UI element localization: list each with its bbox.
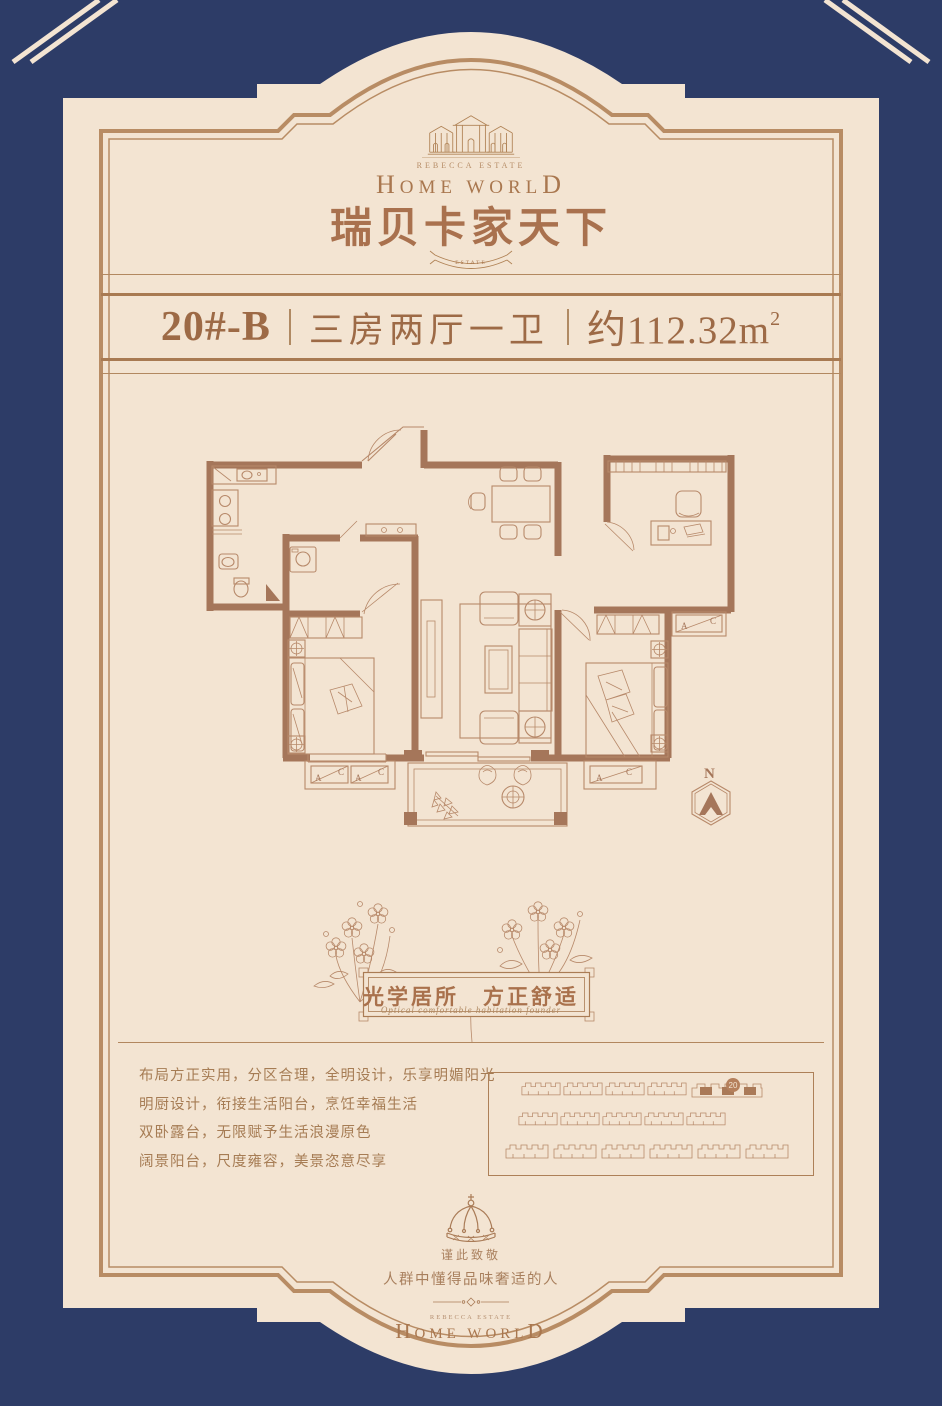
unit-banner: 20#-B 三房两厅一卫 约112.32m2	[101, 293, 841, 361]
footer-brand-name: HOME WORLD	[395, 1321, 546, 1344]
feature-line: 双卧露台，无限赋予生活浪漫原色	[139, 1119, 496, 1148]
kitchen	[212, 466, 276, 534]
poster: REBECCA ESTATE HOME WORLD 瑞贝卡家天下 ESTATE …	[0, 0, 942, 1406]
floorplan-walls	[207, 430, 734, 758]
building-footprint	[519, 1113, 557, 1125]
compass-icon: N	[692, 766, 730, 825]
hall-cabinet	[366, 524, 416, 536]
entry-porch	[362, 427, 424, 461]
tribute-line: 谨此致敬	[441, 1246, 501, 1263]
floral-ornament	[300, 890, 645, 1045]
unit-area: 约112.32m2	[587, 299, 781, 355]
balcony-pillar	[404, 750, 422, 759]
svg-text:C: C	[378, 767, 384, 777]
footer-estate-label: REBECCA ESTATE	[430, 1314, 512, 1321]
building-footprint	[564, 1083, 602, 1095]
site-plan-map: 20	[488, 1072, 814, 1176]
washing-machine	[290, 547, 316, 572]
feature-line: 阔景阳台，尺度雍容，美景恣意尽享	[139, 1148, 496, 1177]
building-footprint	[698, 1145, 740, 1158]
unit-layout: 三房两厅一卫	[309, 302, 549, 353]
unit-number: 20#-B	[161, 303, 271, 351]
brand-name: HOME WORLD	[376, 172, 566, 202]
ribbon-ornament: ESTATE	[426, 250, 516, 274]
brand-chinese-name: 瑞贝卡家天下	[330, 208, 612, 250]
dining-set	[469, 467, 551, 539]
balcony-pillar	[531, 750, 549, 759]
ac-unit-ne: A C	[672, 612, 726, 636]
ac-unit-se: A C	[584, 761, 656, 789]
balcony	[404, 752, 567, 826]
divider-ornament-icon	[431, 1296, 511, 1308]
building-footprint	[606, 1083, 644, 1095]
plant	[432, 792, 458, 819]
svg-text:A: A	[355, 773, 362, 783]
feature-line: 布局方正实用，分区合理，全明设计，乐享明媚阳光	[139, 1062, 496, 1091]
brand-first-letter: H	[395, 1319, 414, 1343]
ribbon-text: ESTATE	[455, 260, 486, 266]
banner-divider	[567, 309, 569, 345]
feature-list: 布局方正实用，分区合理，全明设计，乐享明媚阳光 明厨设计，衔接生活阳台，烹饪幸福…	[139, 1062, 496, 1176]
building-footprint	[746, 1145, 788, 1158]
area-superscript: 2	[770, 308, 781, 330]
feature-line: 明厨设计，衔接生活阳台，烹饪幸福生活	[139, 1091, 496, 1120]
brand-first-letter: H	[376, 170, 400, 199]
study-window	[608, 461, 726, 472]
corner-ornament-left	[13, 0, 117, 62]
building-footprint	[648, 1083, 686, 1095]
bedroom-sw-door	[362, 583, 400, 614]
svg-text:C: C	[626, 767, 632, 777]
footer-block: 谨此致敬 人群中懂得品味奢适的人 REBECCA ESTATE HOME WOR…	[0, 1192, 942, 1344]
building-footprint	[554, 1145, 596, 1158]
slogan-english: Optical comfortable habitation founder	[0, 1005, 942, 1015]
building-footprint	[602, 1145, 644, 1158]
svg-text:C: C	[338, 767, 344, 777]
banner-rule-top	[101, 274, 841, 275]
study-desk	[651, 491, 711, 545]
bedroom-southeast	[586, 615, 668, 757]
building-footprint	[645, 1113, 683, 1125]
building-footprint	[650, 1145, 692, 1158]
building-footprint	[561, 1113, 599, 1125]
mansion-illustration-icon	[416, 110, 526, 158]
study-door	[605, 522, 634, 551]
svg-text:A: A	[681, 621, 688, 631]
laundry-door	[340, 521, 357, 538]
bedroom-southwest	[288, 617, 374, 754]
logo-block: REBECCA ESTATE HOME WORLD 瑞贝卡家天下 ESTATE	[0, 110, 942, 274]
floor-plan: A C A C A C A C N	[203, 422, 743, 842]
bathroom	[219, 554, 280, 601]
brand-last-letter: D	[542, 170, 566, 199]
brand-last-letter: D	[527, 1319, 546, 1343]
bedroom-se-door	[560, 610, 590, 641]
crown-icon	[441, 1192, 501, 1242]
svg-text:20: 20	[729, 1081, 738, 1090]
ac-unit-sw: A C A C	[305, 761, 395, 789]
svg-text:A: A	[315, 773, 322, 783]
living-room	[421, 592, 552, 744]
banner-rule-bottom	[101, 373, 841, 374]
svg-text:N: N	[704, 766, 715, 782]
corner-ornament-right	[825, 0, 929, 62]
section-divider	[118, 1042, 824, 1043]
brand-middle: OME WORL	[400, 177, 543, 198]
audience-line: 人群中懂得品味奢适的人	[383, 1268, 559, 1289]
building-footprint	[687, 1113, 725, 1125]
building-footprint	[506, 1145, 548, 1158]
brand-middle: OME WORL	[415, 1326, 528, 1342]
svg-text:A: A	[596, 773, 603, 783]
building-20-badge: 20	[726, 1078, 740, 1092]
estate-label: REBECCA ESTATE	[417, 161, 526, 170]
building-footprint	[522, 1083, 560, 1095]
building-footprint	[603, 1113, 641, 1125]
banner-divider	[289, 309, 291, 345]
svg-text:C: C	[710, 616, 716, 626]
